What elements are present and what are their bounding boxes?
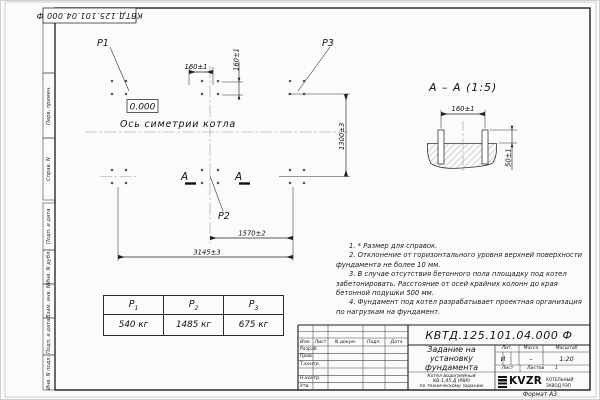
- title-block-subtitle: Котел водогрейный КВ-1,45 Д (РВР) по тех…: [408, 374, 495, 390]
- note-4: 4. Фундамент под котел разрабатывает про…: [336, 298, 590, 317]
- lit-value: И: [495, 355, 511, 363]
- drawing-sheet: P1 P3 P2 0.000 Ось симетрии котла А А 16…: [0, 0, 600, 400]
- load-table-header-row: P1 P2 P3: [104, 296, 284, 315]
- kvzr-logo-icon: [498, 376, 507, 388]
- margin-label-inv-podl: Инв. N подл.: [43, 355, 55, 390]
- dim-160-vertical: 160±1: [233, 48, 241, 71]
- margin-label-inv-dubl: Инв. N дубл.: [43, 250, 55, 284]
- title-block-doc-number: КВТД.125.101.04.000 Ф: [408, 327, 590, 344]
- load-table-header-p1: P1: [104, 296, 164, 315]
- margin-label-vzam-inv: Взам. инв. N: [43, 284, 55, 318]
- dim-160-horizontal: 160±1: [185, 63, 208, 71]
- dim-1300: 1300±3: [338, 123, 346, 150]
- sheet-label: Лист: [495, 366, 520, 371]
- col-data: Дата: [385, 340, 408, 345]
- company-name: КОТЕЛЬНЫЙ ЗАВОД РЭП: [546, 377, 573, 388]
- note-1: 1. * Размер для справок.: [336, 242, 590, 251]
- col-ndocum: N докум.: [328, 340, 363, 345]
- row-utv: Утв.: [300, 384, 310, 389]
- margin-label-podp-data-1: Подп. и дата: [43, 203, 55, 250]
- load-value-p1: 540 кг: [104, 315, 164, 336]
- section-view: А – А (1:5) 160±1 50±1: [427, 81, 517, 172]
- kvzr-logo-text: KVZR: [509, 375, 542, 387]
- dim-3145: 3145±3: [193, 249, 220, 257]
- notes-block: 1. * Размер для справок. 2. Отклонение о…: [336, 242, 590, 317]
- note-2: 2. Отклонение от горизонтального уровня …: [336, 251, 590, 270]
- mass-header: Масса: [519, 346, 543, 351]
- margin-label-perv-primen: Перв. примен.: [43, 73, 55, 138]
- section-dim-50: 50±1: [505, 148, 513, 167]
- row-prov: Пров.: [300, 354, 313, 359]
- mass-value: –: [519, 355, 543, 363]
- load-table-header-p3: P3: [224, 296, 284, 315]
- load-table: P1 P2 P3 540 кг 1485 кг 675 кг: [103, 295, 284, 336]
- point-label-p2: P2: [218, 211, 230, 222]
- section-dim-160: 160±1: [452, 105, 475, 113]
- col-list: Лист: [313, 340, 328, 345]
- sheets-label: Листов: [527, 366, 544, 371]
- section-letter-left: А: [180, 171, 188, 183]
- level-mark: 0.000: [130, 103, 156, 113]
- note-3: 3. В случае отсутствия бетонного пола пл…: [336, 270, 590, 298]
- margin-label-podp-data-2: Подп. и дата: [43, 318, 55, 355]
- lit-header: Лит.: [495, 346, 519, 351]
- load-table-value-row: 540 кг 1485 кг 675 кг: [104, 315, 284, 336]
- load-value-p3: 675 кг: [224, 315, 284, 336]
- col-podp: Подп.: [363, 340, 385, 345]
- col-izm: Изм.: [298, 340, 313, 345]
- scale-header: Масштаб: [543, 346, 590, 351]
- dim-1570: 1570±2: [238, 230, 265, 238]
- plan-view: P1 P3 P2 0.000 Ось симетрии котла А А 16…: [85, 38, 350, 261]
- load-value-p2: 1485 кг: [164, 315, 224, 336]
- row-nkontr: Н.контр.: [300, 376, 321, 381]
- point-label-p3: P3: [322, 38, 334, 49]
- title-block-title: Задание на установку фундамента: [408, 346, 495, 372]
- load-table-header-p2: P2: [164, 296, 224, 315]
- row-razrab: Разраб.: [300, 347, 318, 352]
- margin-label-sprav-n: Справ. N: [43, 138, 55, 200]
- top-doc-number-stamp: КВТД.125.101.04.000 Ф: [43, 8, 136, 23]
- boiler-axis-label: Ось симетрии котла: [120, 119, 236, 130]
- section-title: А – А (1:5): [428, 81, 497, 94]
- section-letter-right: А: [234, 171, 242, 183]
- row-tkontr: Т.контр.: [300, 362, 320, 367]
- point-label-p1: P1: [97, 38, 109, 49]
- format-label: Формат А3: [505, 391, 575, 398]
- sheets-value: 1: [555, 366, 558, 371]
- scale-value: 1:20: [543, 355, 590, 363]
